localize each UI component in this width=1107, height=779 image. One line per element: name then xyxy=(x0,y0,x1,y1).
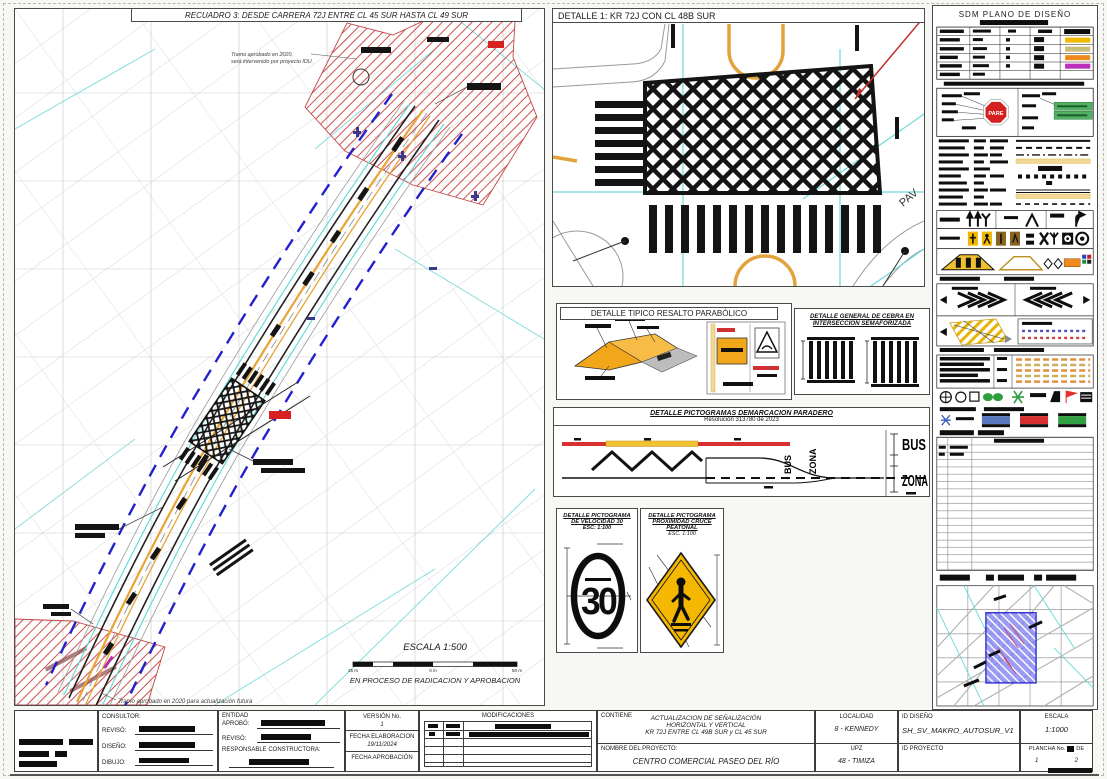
legend-linework-rows xyxy=(939,139,1090,205)
pav-label: PAV xyxy=(897,187,921,210)
sdm-legend-panel: SDM PLANO DE DISEÑO xyxy=(932,5,1098,710)
paradero-bus-zona-cell: BUS ZONA xyxy=(886,430,928,496)
id-proyecto-label: ID PROYECTO xyxy=(902,746,943,752)
cebra-drawing xyxy=(795,335,929,393)
upz-label: UPZ xyxy=(816,746,897,752)
localidad-cell: LOCALIDAD 8 - KENNEDY UPZ 48 - TIMIZA xyxy=(815,710,898,772)
localidad-label: LOCALIDAD xyxy=(816,714,897,720)
localidad-value: 8 - KENNEDY xyxy=(816,726,897,733)
entidad-aprobo-label: APROBÓ: xyxy=(222,721,249,727)
scale-label-mid: 0 m xyxy=(429,668,437,673)
paradero-drawing: BUS ZONA BUS ZONA xyxy=(554,430,929,496)
legend-chevron-row xyxy=(937,284,1093,316)
bus-rotated-label: BUS xyxy=(783,455,793,474)
version-label: VERSIÓN No. xyxy=(346,714,418,720)
paradero-title: DETALLE PICTOGRAMAS DEMARCACION PARADERO xyxy=(554,410,929,417)
location-map xyxy=(937,586,1093,706)
annotation-top-line2: será intervenido por proyecto IDU. xyxy=(231,59,313,65)
contiene-line2: HORIZONTAL Y VERTICAL xyxy=(598,722,814,729)
escala-cell: ESCALA 1:1000 PLANCHA No. DE 1 2 xyxy=(1020,710,1093,772)
legend-hatch-row xyxy=(937,316,1093,346)
zebra-crossing-left xyxy=(595,101,645,186)
fecha-aprob-label: FECHA APROBACIÓN xyxy=(346,755,418,761)
paradero-panel: DETALLE PICTOGRAMAS DEMARCACION PARADERO… xyxy=(553,407,930,497)
escala-label: ESCALA xyxy=(1021,714,1092,720)
responsable-label: RESPONSABLE CONSTRUCTORA: xyxy=(222,747,321,753)
id-cell: ID DISEÑO SH_SV_MAKRO_AUTOSUR_V1 ID PROY… xyxy=(898,710,1020,772)
id-diseno-value: SH_SV_MAKRO_AUTOSUR_V1 xyxy=(902,726,1014,735)
detalle1-panel: DETALLE 1: KR 72J CON CL 48B SUR xyxy=(552,8,925,287)
resalto-panel: DETALLE TIPICO RESALTO PARABÓLICO xyxy=(556,303,792,400)
version-cell: VERSIÓN No. 1 FECHA ELABORACION 19/11/20… xyxy=(345,710,419,772)
entidad-cell: ENTIDAD APROBÓ: REVISÓ: RESPONSABLE CONS… xyxy=(218,710,345,772)
escala-value: 1:1000 xyxy=(1021,725,1092,734)
modificaciones-label: MODIFICACIONES xyxy=(420,713,596,719)
legend-bump-row xyxy=(937,249,1093,275)
legend-swatches-row xyxy=(941,413,1086,427)
resalto-title: DETALLE TIPICO RESALTO PARABÓLICO xyxy=(560,307,778,320)
entidad-reviso-label: REVISÓ: xyxy=(222,736,246,742)
plancha-num: 1 xyxy=(1035,758,1038,764)
plancha-total: 2 xyxy=(1075,758,1078,764)
sign-diagram xyxy=(707,322,785,394)
logo-cell: BOGOTA ✦ xyxy=(14,710,98,772)
consultor-label: CONSULTOR: xyxy=(102,714,141,720)
legend-inventory-table xyxy=(937,430,1093,570)
paradero-markings: BUS ZONA xyxy=(562,438,926,489)
zona-rotated-label: ZONA xyxy=(808,448,818,474)
scale-label-right: 50 m xyxy=(512,668,522,673)
pare-text: PARE xyxy=(988,111,1003,117)
box-junction-crosshatch xyxy=(645,66,880,193)
zona-label: ZONA xyxy=(902,473,928,490)
plancha-redacted-bar xyxy=(1067,746,1074,752)
velocidad-panel: DETALLE PICTOGRAMA DE VELOCIDAD 30 ESC: … xyxy=(556,508,638,653)
cebra-group-2 xyxy=(865,337,919,387)
cebra-panel: DETALLE GENERAL DE CEBRA EN INTERSECCIÓN… xyxy=(794,308,930,395)
detalle1-drawing: PAV xyxy=(553,9,924,286)
legend-title: SDM PLANO DE DISEÑO xyxy=(959,10,1072,19)
consultor-dibujo-label: DIBUJO: xyxy=(102,760,126,766)
consultor-reviso-label: REVISÓ: xyxy=(102,728,126,734)
contiene-line3: KR 72J ENTRE CL 49B SUR y CL 45 SUR xyxy=(598,729,814,736)
contiene-line1: ACTUALIZACION DE SEÑALIZACIÓN xyxy=(598,715,814,722)
de-label: DE xyxy=(1076,746,1084,752)
legend-orange-table xyxy=(937,355,1093,388)
legend-map-header xyxy=(940,575,1076,581)
modificaciones-cell: MODIFICACIONES xyxy=(419,710,597,772)
version-value: 1 xyxy=(346,722,418,728)
legend-color-table xyxy=(937,27,1093,86)
legend-pare-section: PARE xyxy=(937,88,1093,136)
consultor-diseno-label: DISEÑO: xyxy=(102,744,127,750)
consultor-cell: CONSULTOR: REVISÓ: DISEÑO: DIBUJO: xyxy=(98,710,218,772)
fecha-elab-value: 19/11/2024 xyxy=(346,742,418,748)
id-diseno-label: ID DISEÑO xyxy=(902,714,933,720)
cebra-group-1 xyxy=(801,337,855,383)
detalle1-title: DETALLE 1: KR 72J CON CL 48B SUR xyxy=(552,8,925,23)
red-leader xyxy=(855,17,924,99)
legend-subtitle-bar xyxy=(980,20,1048,25)
cebra-title-line2: INTERSECCIÓN SEMAFORIZADA xyxy=(795,320,929,327)
corner-mark xyxy=(1048,768,1092,773)
annotation-bottom: Tramo aprobado en 2020 para actualizació… xyxy=(118,699,253,705)
cebra-title-line1: DETALLE GENERAL DE CEBRA EN xyxy=(795,313,929,320)
velocidad-esc: ESC: 1:100 xyxy=(557,525,637,531)
nombre-proyecto-label: NOMBRE DEL PROYECTO: xyxy=(601,746,677,752)
legend-arrow-row xyxy=(937,211,1093,229)
sheet-bottom-rule xyxy=(10,774,1099,776)
scale-bar xyxy=(353,662,517,667)
velocidad-drawing: 30 xyxy=(557,542,637,650)
entidad-label: ENTIDAD xyxy=(222,713,248,719)
paradero-subtitle: Resolución 313780 de 2023 xyxy=(554,417,929,423)
legend-device-icons-row xyxy=(940,391,1092,403)
status-note: EN PROCESO DE RADICACION Y APROBACION xyxy=(350,676,521,685)
scale-title: ESCALA 1:500 xyxy=(403,642,467,653)
nombre-proyecto-value: CENTRO COMERCIAL PASEO DEL RÍO xyxy=(598,757,814,766)
map-project-zone xyxy=(986,613,1036,683)
annotation-top-line1: Tramo aprobado en 2020, xyxy=(231,52,293,58)
recuadro3-panel: Tramo aprobado en 2020, será intervenido… xyxy=(14,8,545,706)
contiene-cell: CONTIENE ACTUALIZACION DE SEÑALIZACIÓN H… xyxy=(597,710,815,772)
speed-value: 30 xyxy=(581,581,617,623)
recuadro3-drawing: Tramo aprobado en 2020, será intervenido… xyxy=(15,9,544,705)
recuadro3-title: RECUADRO 3: DESDE CARRERA 72J ENTRE CL 4… xyxy=(131,8,522,22)
legend-drawing: SDM PLANO DE DISEÑO xyxy=(933,6,1097,709)
plancha-label: PLANCHA No. xyxy=(1029,746,1065,752)
scale-label-left: 25 m xyxy=(348,668,358,673)
zebra-crossing-bottom xyxy=(649,205,881,253)
bus-label: BUS xyxy=(902,437,926,454)
peatonal-esc: ESC. 1:100 xyxy=(641,531,723,537)
fecha-elab-label: FECHA ELABORACION xyxy=(346,734,418,740)
peatonal-drawing xyxy=(641,549,723,651)
plan-sheet: Tramo aprobado en 2020, será intervenido… xyxy=(0,0,1107,779)
upz-value: 48 - TIMIZA xyxy=(816,758,897,765)
legend-pictogram-row xyxy=(937,229,1093,249)
peatonal-panel: DETALLE PICTOGRAMA PROXIMIDAD CRUCE PEAT… xyxy=(640,508,724,653)
ramp-diagram xyxy=(575,317,697,380)
